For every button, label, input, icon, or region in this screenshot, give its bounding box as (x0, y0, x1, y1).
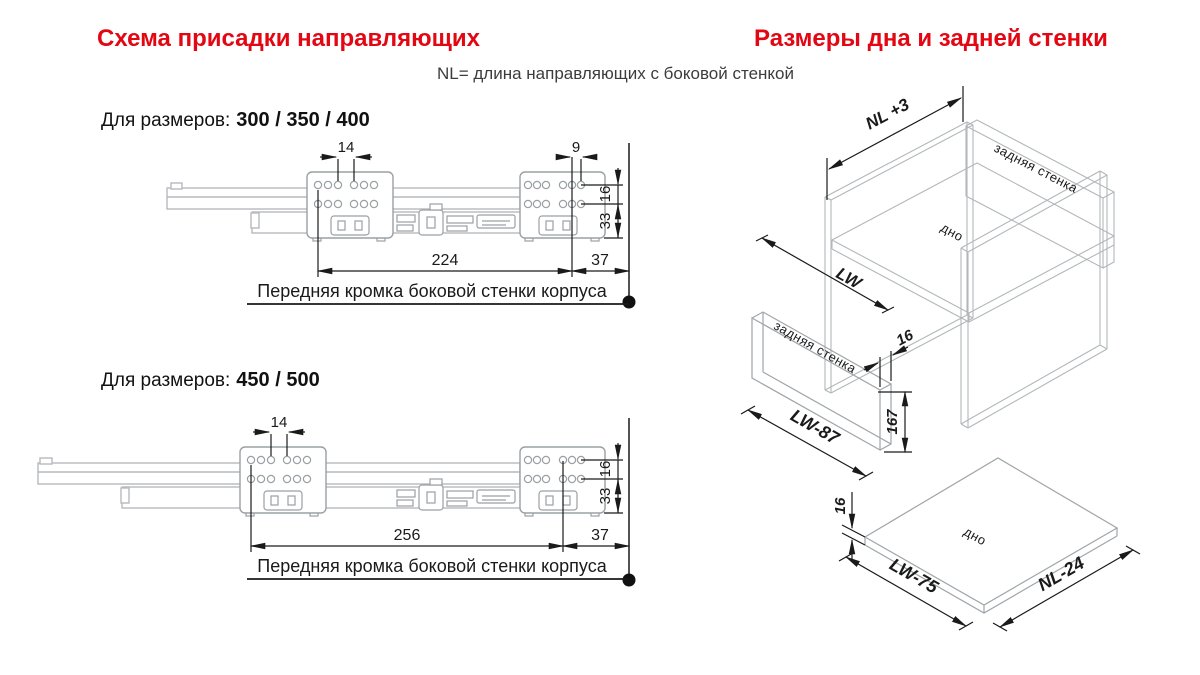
page: Схема присадки направляющих Размеры дна … (0, 0, 1200, 675)
dim-label-lw-87: LW-87 (787, 405, 843, 449)
front-edge-dot (623, 296, 636, 309)
dim-label-front-offset: 37 (591, 527, 609, 544)
cabinet-back-wall (966, 120, 1114, 268)
dim-label-lw-75: LW-75 (886, 554, 942, 598)
dim-label-14: 14 (271, 414, 288, 431)
cabinet-right-side-wall (961, 171, 1107, 428)
diagram2-slide-drawing: 14 16 33 256 37 (38, 414, 636, 587)
bottom-panel-label: дно (961, 524, 989, 549)
dim-label-9: 9 (572, 139, 580, 156)
front-edge-dot (623, 574, 636, 587)
cabinet-bottom-label: дно (938, 220, 966, 245)
bottom-panel-dimensions: LW-75 NL-24 16 (832, 492, 1140, 631)
dim-label-33: 33 (597, 488, 614, 505)
bottom-panel-isometric: дно LW-75 NL-24 16 (832, 458, 1140, 631)
back-panel-isometric: задняя стенка LW-87 167 16 (741, 312, 917, 480)
dim-label-length: 256 (394, 527, 421, 544)
dim-label-14: 14 (338, 139, 355, 156)
dim-label-back-thickness: 16 (894, 326, 917, 349)
dim-label-bottom-thickness: 16 (832, 497, 849, 514)
front-mounting-bracket (240, 447, 326, 516)
dim-label-lw: LW (833, 264, 866, 294)
cabinet-isometric: задняя стенка дно NL +3 LW (756, 86, 1114, 428)
technical-drawing-canvas: 14 9 16 33 (0, 0, 1200, 675)
rear-mounting-bracket (520, 172, 605, 241)
dim-label-167: 167 (884, 409, 901, 435)
front-edge-note: Передняя кромка боковой стенки корпуса (257, 556, 607, 576)
dim-label-16: 16 (597, 186, 614, 203)
diagram1-slide-drawing: 14 9 16 33 (167, 139, 636, 309)
back-panel-label: задняя стенка (771, 318, 859, 377)
dim-label-length: 224 (432, 252, 459, 269)
cabinet-dimensions: NL +3 LW (756, 86, 963, 313)
front-edge-note: Передняя кромка боковой стенки корпуса (257, 281, 607, 301)
dim-label-front-offset: 37 (591, 252, 609, 269)
dim-label-nl-24: NL-24 (1034, 553, 1087, 595)
front-mounting-bracket (307, 172, 393, 241)
dim-label-33: 33 (597, 213, 614, 230)
dim-label-16: 16 (597, 461, 614, 478)
